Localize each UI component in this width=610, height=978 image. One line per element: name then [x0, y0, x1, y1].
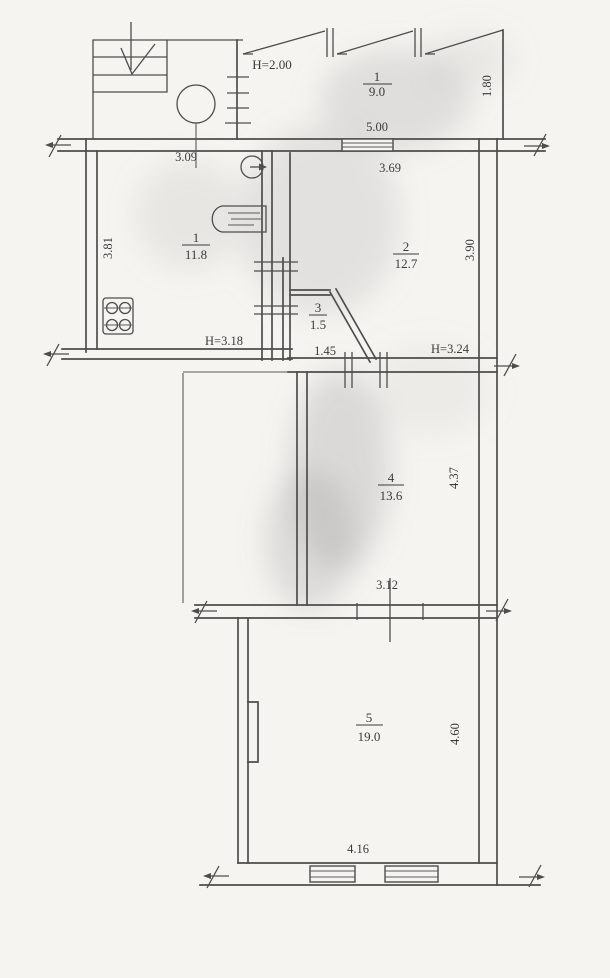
gas-stove-icon: [103, 298, 133, 334]
kitchen-number-label: 1: [193, 230, 200, 245]
room3-width-dim: 1.45: [314, 344, 336, 358]
room3-number-label: 3: [315, 300, 322, 315]
kitchen-depth-dim: 3.81: [101, 237, 115, 259]
room4-number-label: 4: [388, 470, 395, 485]
balcony-number-label: 1: [374, 69, 381, 84]
kitchen-height-label: H=3.18: [205, 334, 243, 348]
kitchen-area-label: 11.8: [185, 247, 207, 262]
room5-number-label: 5: [366, 710, 373, 725]
balcony-depth-dim: 1.80: [480, 75, 494, 97]
balcony-width-dim: 5.00: [366, 120, 388, 134]
floor-plan: H=2.00 1 9.0 1.80 5.00 3.09 1 11.8 3.81 …: [0, 0, 610, 978]
window-room5-left: [310, 866, 355, 882]
room2-width-dim: 3.69: [379, 161, 401, 175]
room2-area-label: 12.7: [395, 256, 418, 271]
room2-height-label: H=3.24: [431, 342, 470, 356]
window-room5-right: [385, 866, 438, 882]
room5-area-label: 19.0: [358, 729, 381, 744]
room5-width-dim: 4.16: [347, 842, 369, 856]
window-balcony-wall: [342, 139, 393, 151]
room4-area-label: 13.6: [380, 488, 403, 503]
room5-depth-dim: 4.60: [448, 723, 462, 745]
room4-width-dim: 3.12: [376, 578, 398, 592]
room3-area-label: 1.5: [310, 317, 326, 332]
room2-number-label: 2: [403, 239, 410, 254]
balcony-height-label: H=2.00: [252, 57, 291, 72]
balcony-area-label: 9.0: [369, 84, 385, 99]
landing-width-dim: 3.09: [175, 150, 197, 164]
room2-depth-dim: 3.90: [463, 239, 477, 261]
landing-partition: [225, 40, 251, 139]
room4-depth-dim: 4.37: [447, 467, 461, 489]
staircase-icon: [93, 22, 243, 139]
floor-plan-page: H=2.00 1 9.0 1.80 5.00 3.09 1 11.8 3.81 …: [0, 0, 610, 978]
